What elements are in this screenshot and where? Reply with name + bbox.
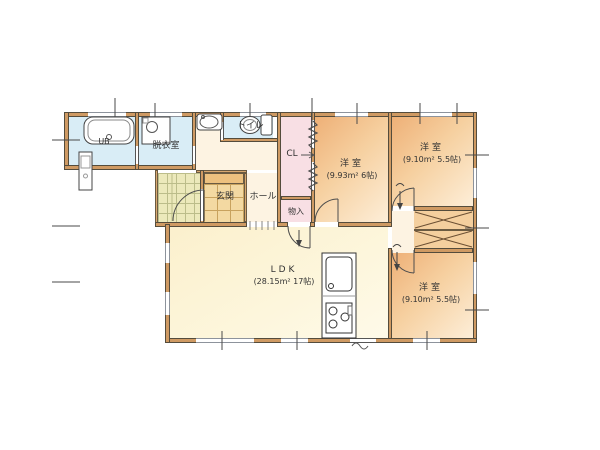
passage-hatch [250,221,274,230]
label-bedroom1: 洋室 (9.93m² 6帖) [312,159,392,182]
plan-annotations [0,0,600,450]
label-bedroom2: 洋室 (9.10m² 5.5帖) [391,143,473,166]
closet-x-marks [415,212,472,247]
vanity-icon [79,152,92,190]
cl-leader-line [301,152,314,158]
sliding-door-mark [352,343,368,349]
label-ub: UB [90,137,118,147]
label-hall: ホール [243,192,283,204]
label-storage: 物入 [281,207,311,217]
label-ldk: LDK (28.15m² 17帖) [238,265,330,288]
label-toilet: トイレ [228,121,273,133]
washing-machine-icon [142,117,170,144]
label-cl: CL [282,149,302,161]
label-bedroom3: 洋室 (9.10m² 5.5帖) [390,283,472,306]
floor-plan: UB 脱衣室 トイレ CL 洋室 (9.93m² 6帖) 洋室 (9.10m² … [0,0,600,450]
label-genkan: 玄関 [206,192,244,204]
washbasin-icon [197,114,222,130]
label-dressing: 脱衣室 [138,141,194,153]
